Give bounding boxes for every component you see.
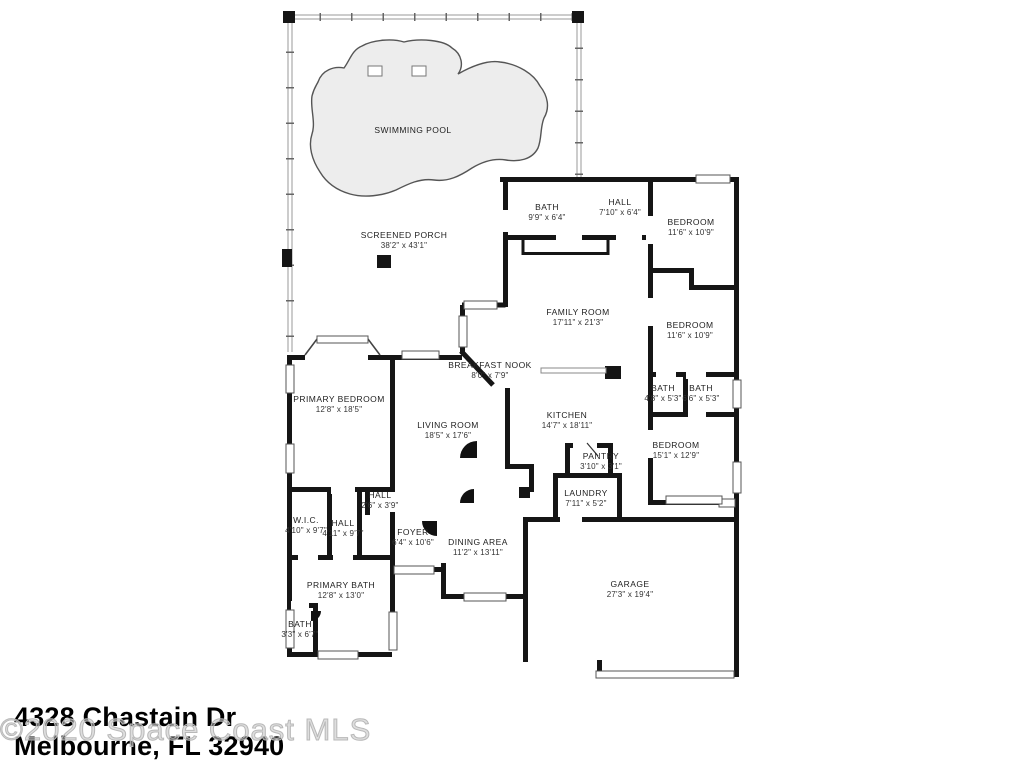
walls — [287, 177, 739, 677]
windows — [286, 175, 741, 678]
address-line-1: 4328 Chastain Dr — [14, 702, 236, 733]
wall-blocks — [519, 366, 621, 498]
swimming-pool-shape — [310, 40, 547, 196]
floor-plan-page: { "footer": { "address_line1": "4328 Cha… — [0, 0, 1024, 768]
address-line-2: Melbourne, FL 32940 — [14, 731, 284, 762]
door-openings — [291, 210, 706, 610]
floor-plan-drawing — [0, 0, 1024, 768]
